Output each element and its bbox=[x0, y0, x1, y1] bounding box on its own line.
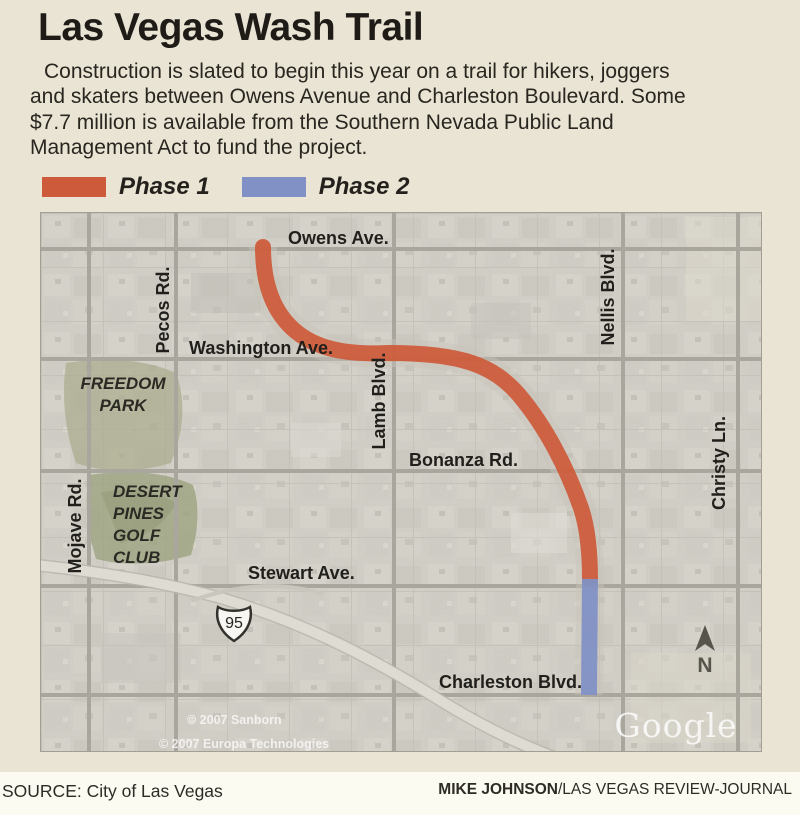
description-line: $7.7 million is available from the South… bbox=[30, 110, 742, 136]
byline-name: MIKE JOHNSON bbox=[438, 781, 558, 798]
label-bonanza-rd: Bonanza Rd. bbox=[409, 450, 518, 470]
phase1-label: Phase 1 bbox=[119, 173, 210, 201]
label-park: PARK bbox=[100, 396, 149, 415]
copyright-sanborn: © 2007 Sanborn bbox=[187, 713, 282, 727]
label-washington-ave: Washington Ave. bbox=[189, 338, 333, 358]
label-golf: GOLF bbox=[113, 526, 161, 545]
label-stewart-ave: Stewart Ave. bbox=[248, 563, 355, 583]
phase2-swatch bbox=[242, 177, 306, 197]
source-credit: SOURCE: City of Las Vegas bbox=[0, 781, 223, 802]
google-watermark: Google bbox=[614, 706, 737, 745]
description-line: Management Act to fund the project. bbox=[30, 135, 742, 161]
page-title: Las Vegas Wash Trail bbox=[0, 0, 800, 49]
description-line: and skaters between Owens Avenue and Cha… bbox=[30, 84, 742, 110]
description-line: Construction is slated to begin this yea… bbox=[30, 59, 742, 85]
byline-org: /LAS VEGAS REVIEW-JOURNAL bbox=[558, 781, 792, 798]
label-lamb-blvd: Lamb Blvd. bbox=[369, 352, 389, 449]
label-pecos-rd: Pecos Rd. bbox=[153, 266, 173, 353]
description: Construction is slated to begin this yea… bbox=[30, 59, 742, 161]
byline: MIKE JOHNSON/LAS VEGAS REVIEW-JOURNAL bbox=[438, 781, 800, 799]
satellite-map: Owens Ave. Pecos Rd. Washington Ave. Nel… bbox=[40, 212, 762, 752]
label-desert: DESERT bbox=[113, 482, 183, 501]
north-label: N bbox=[697, 654, 712, 677]
label-freedom: FREEDOM bbox=[81, 374, 167, 393]
label-mojave-rd: Mojave Rd. bbox=[65, 478, 85, 573]
infographic-panel: Las Vegas Wash Trail Construction is sla… bbox=[0, 0, 800, 772]
phase2-label: Phase 2 bbox=[319, 173, 410, 201]
map-canvas: Owens Ave. Pecos Rd. Washington Ave. Nel… bbox=[41, 213, 761, 751]
label-pines: PINES bbox=[113, 504, 165, 523]
label-owens-ave: Owens Ave. bbox=[288, 228, 389, 248]
label-club: CLUB bbox=[113, 548, 160, 567]
legend: Phase 1 Phase 2 bbox=[42, 176, 800, 198]
phase2-trail bbox=[589, 579, 590, 695]
footer: SOURCE: City of Las Vegas MIKE JOHNSON/L… bbox=[0, 772, 800, 815]
phase1-swatch bbox=[42, 177, 106, 197]
label-charleston-blvd: Charleston Blvd. bbox=[439, 672, 582, 692]
label-christy-ln: Christy Ln. bbox=[709, 416, 729, 510]
us95-number: 95 bbox=[225, 615, 243, 632]
copyright-europa: © 2007 Europa Technologies bbox=[159, 737, 329, 751]
label-nellis-blvd: Nellis Blvd. bbox=[598, 248, 618, 345]
